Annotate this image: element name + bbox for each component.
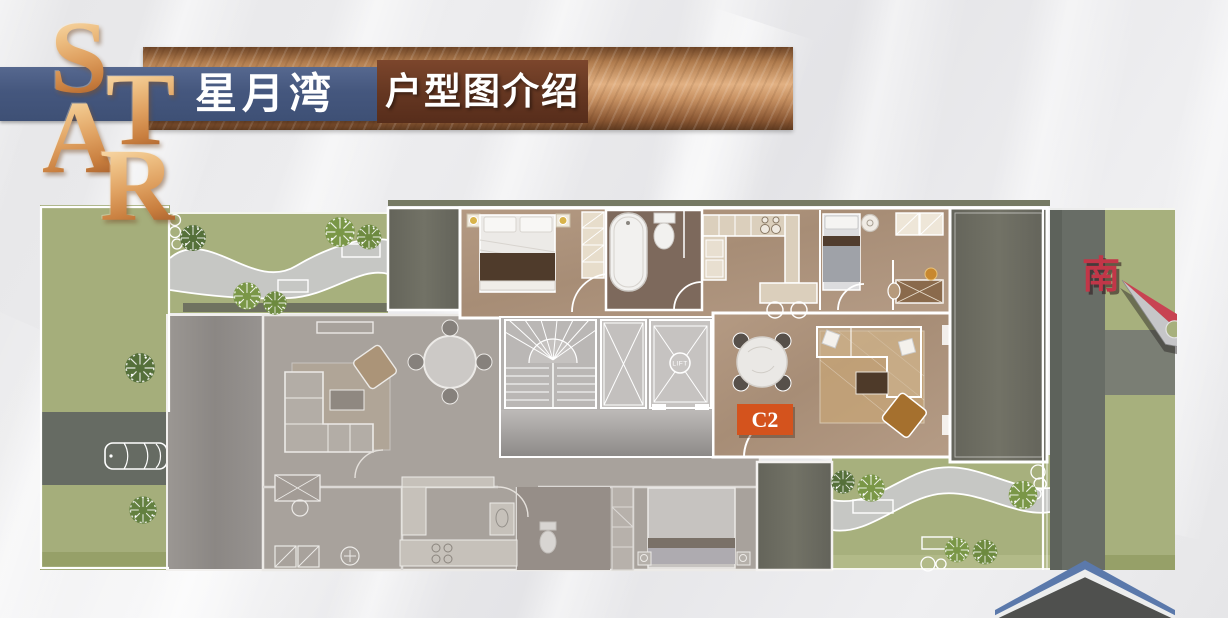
toilet xyxy=(540,522,556,553)
desk-chair xyxy=(888,283,900,299)
corner-decoration xyxy=(995,558,1175,618)
lower-terrace xyxy=(757,462,832,570)
sink-basin xyxy=(762,217,768,223)
neighbor-bed xyxy=(638,488,750,568)
island-counter xyxy=(760,283,817,303)
staircase xyxy=(505,320,596,408)
hedge xyxy=(388,200,1050,206)
washer-icon xyxy=(862,215,879,232)
page-title-box: 户型图介绍 xyxy=(377,60,588,123)
cushion xyxy=(898,338,915,355)
unit-label-c2: C2 xyxy=(737,404,795,438)
single-bed xyxy=(823,214,860,290)
void-shaft xyxy=(601,320,646,408)
coffee-table xyxy=(330,390,364,410)
dining-table xyxy=(733,333,791,391)
west-terrace xyxy=(388,208,460,310)
page-title: 户型图介绍 xyxy=(385,73,580,110)
lift-shaft: LIFT xyxy=(650,320,711,410)
neighbor-bathroom xyxy=(517,487,610,570)
stove-burner xyxy=(761,225,770,234)
double-bed xyxy=(480,215,555,292)
logo-letter-r: R xyxy=(100,134,175,238)
slide-canvas: 星月湾 户型图介绍 S T A R xyxy=(0,0,1228,618)
east-terrace xyxy=(950,208,1047,462)
bottom-right-garden xyxy=(832,455,1050,571)
lift-label: LIFT xyxy=(672,361,687,368)
core: LIFT xyxy=(500,317,713,457)
bathtub xyxy=(610,213,647,291)
bathroom xyxy=(606,210,702,310)
unit-label-text: C2 xyxy=(752,407,779,432)
toilet xyxy=(654,213,675,249)
driveway xyxy=(41,412,168,485)
neighbor-wardrobe xyxy=(612,487,633,570)
south-label: 南 xyxy=(1082,255,1120,297)
coffee-table xyxy=(856,372,888,394)
star-logo: S T A R xyxy=(0,0,240,260)
